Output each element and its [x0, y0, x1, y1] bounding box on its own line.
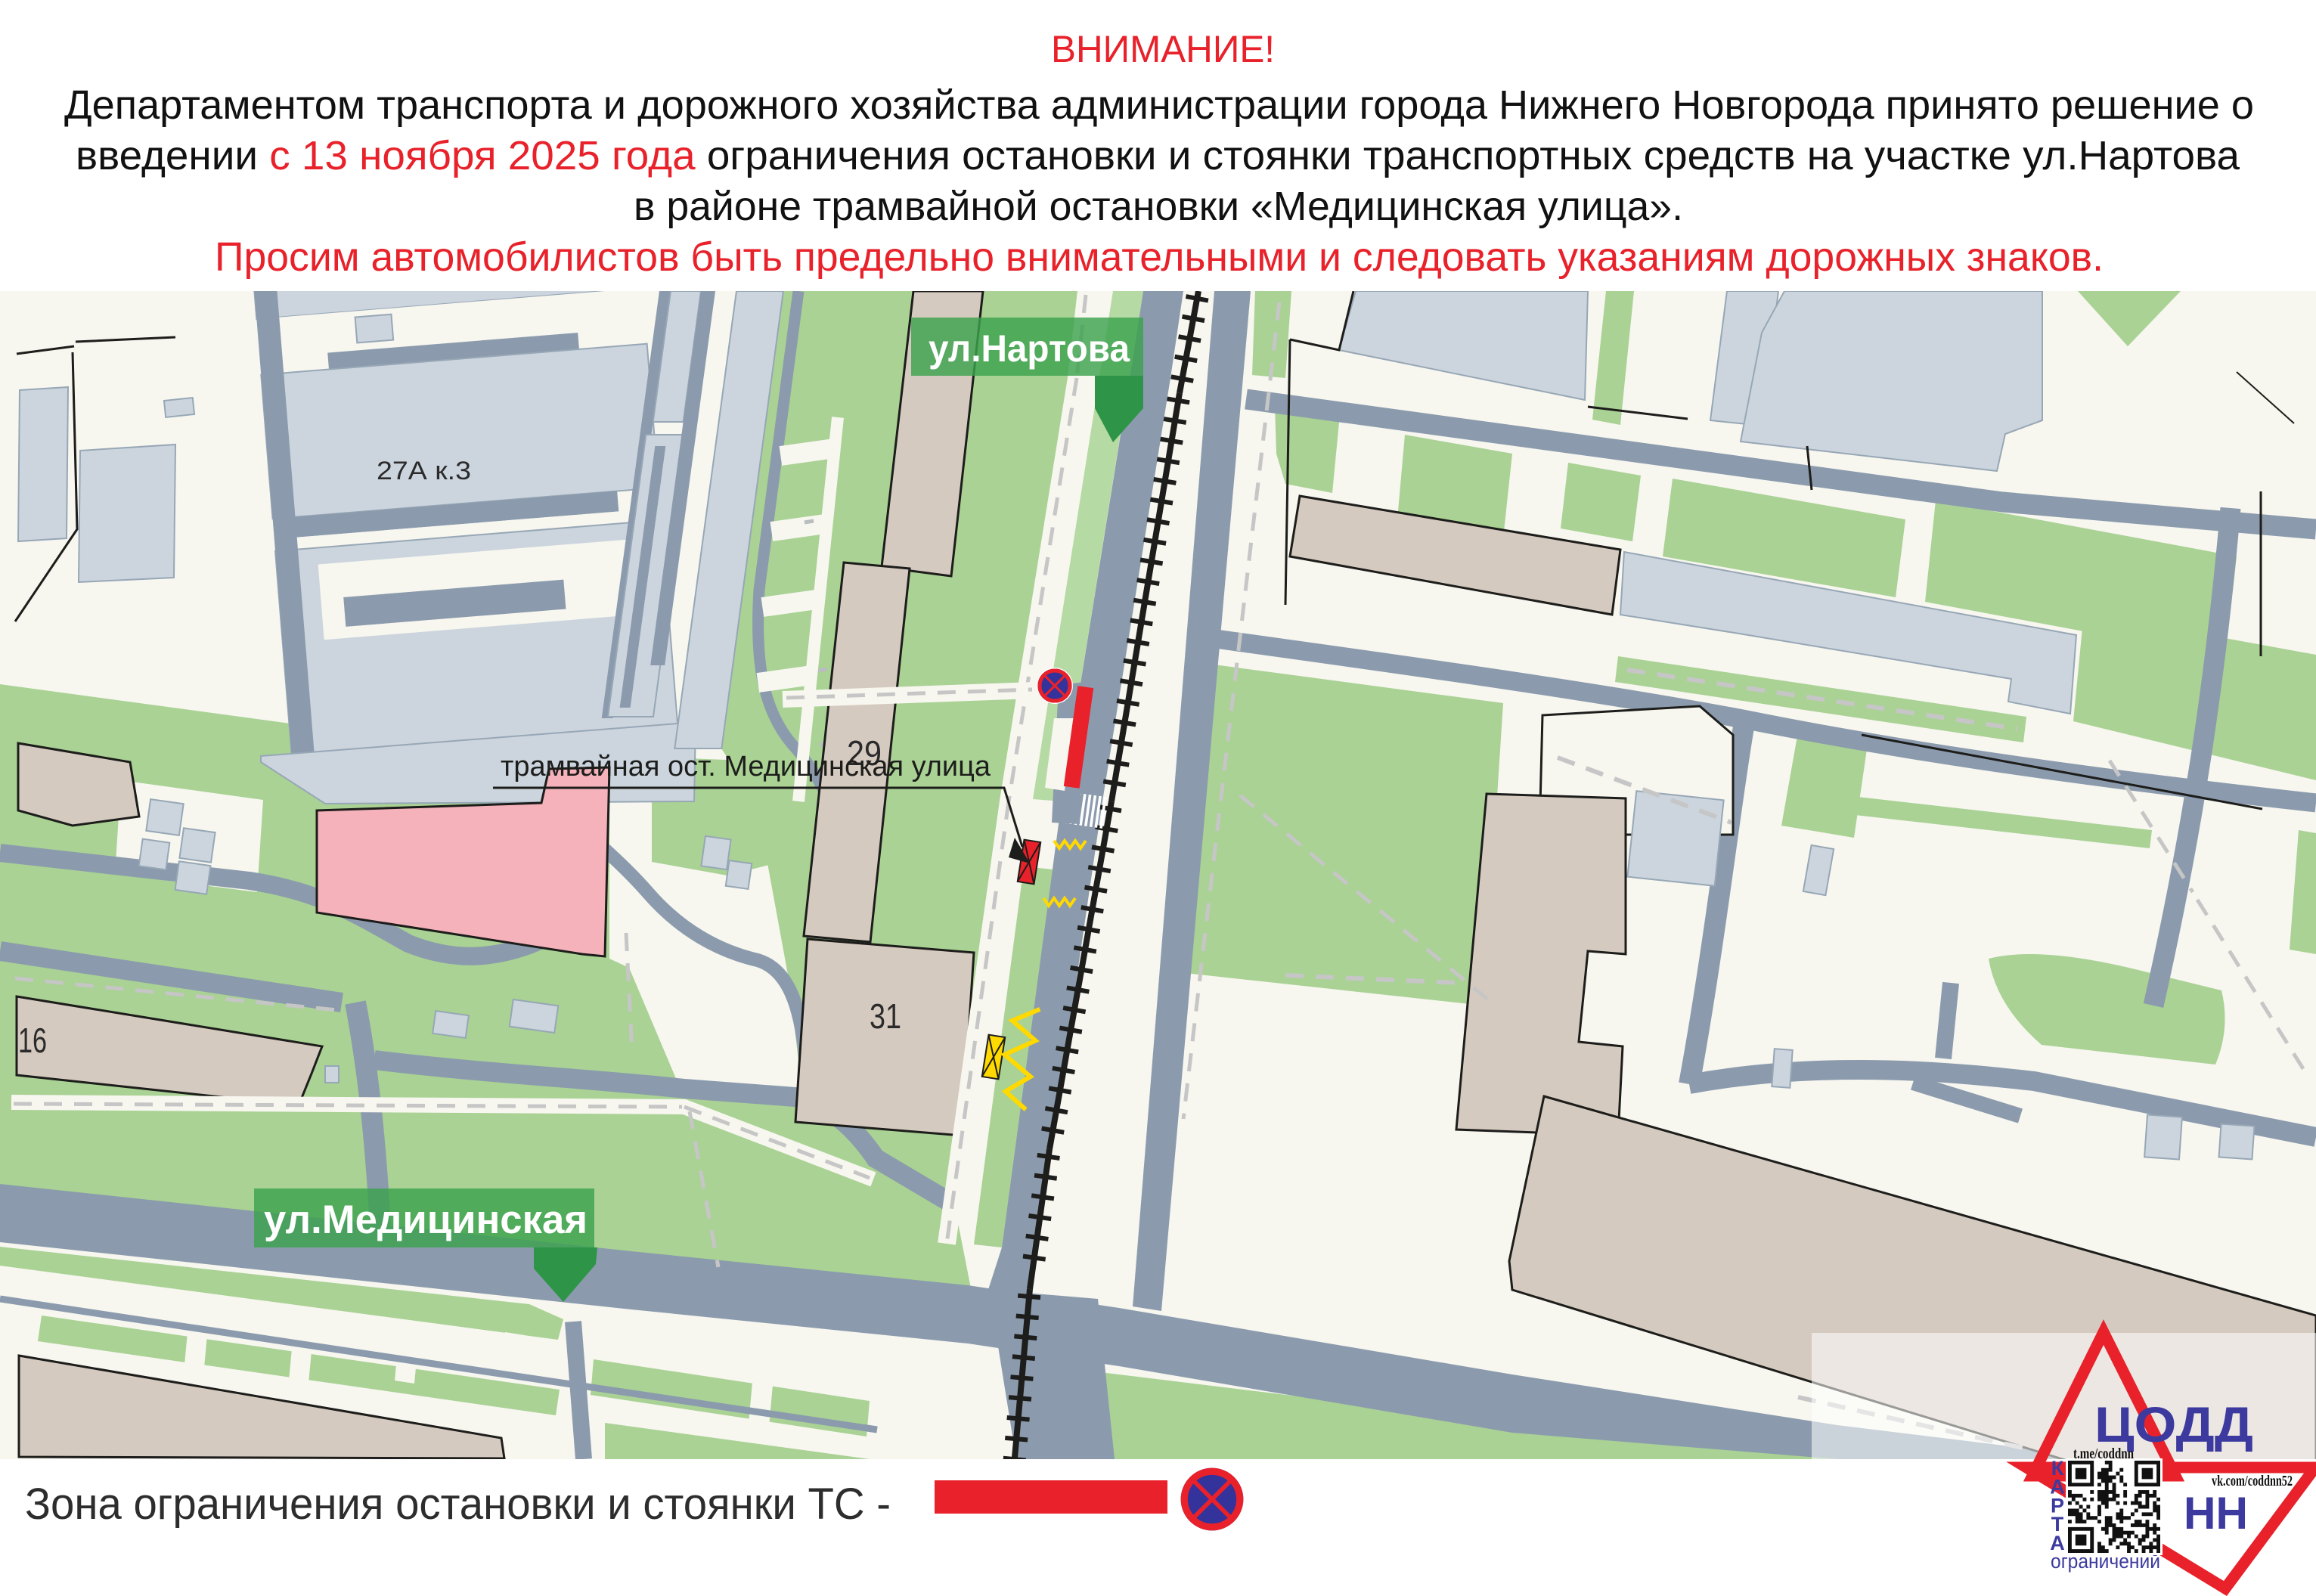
svg-text:ЦОДД: ЦОДД: [2094, 1396, 2253, 1452]
svg-text:в районе трамвайной остановки: в районе трамвайной остановки «Медицинск…: [634, 184, 1683, 229]
svg-text:трамвайная ост. Медицинская ул: трамвайная ост. Медицинская улица: [501, 751, 991, 783]
svg-text:ВНИМАНИЕ!: ВНИМАНИЕ!: [1051, 28, 1275, 70]
svg-text:Просим автомобилистов быть пре: Просим автомобилистов быть предельно вни…: [215, 234, 2104, 280]
svg-text:16: 16: [18, 1021, 47, 1060]
svg-text:31: 31: [870, 996, 901, 1036]
svg-text:Департаментом транспорта и дор: Департаментом транспорта и дорожного хоз…: [64, 82, 2254, 128]
svg-text:vk.com/coddnn52: vk.com/coddnn52: [2212, 1473, 2293, 1489]
svg-text:27А к.3: 27А к.3: [377, 457, 471, 485]
svg-text:Зона ограничения остановки и с: Зона ограничения остановки и стоянки ТС …: [25, 1480, 891, 1529]
svg-text:ул.Нартова: ул.Нартова: [929, 327, 1130, 370]
svg-text:введении с 13 ноября 2025 года: введении с 13 ноября 2025 года ограничен…: [76, 133, 2240, 178]
svg-text:НН: НН: [2184, 1488, 2248, 1539]
svg-text:ул.Медицинская: ул.Медицинская: [264, 1198, 588, 1242]
